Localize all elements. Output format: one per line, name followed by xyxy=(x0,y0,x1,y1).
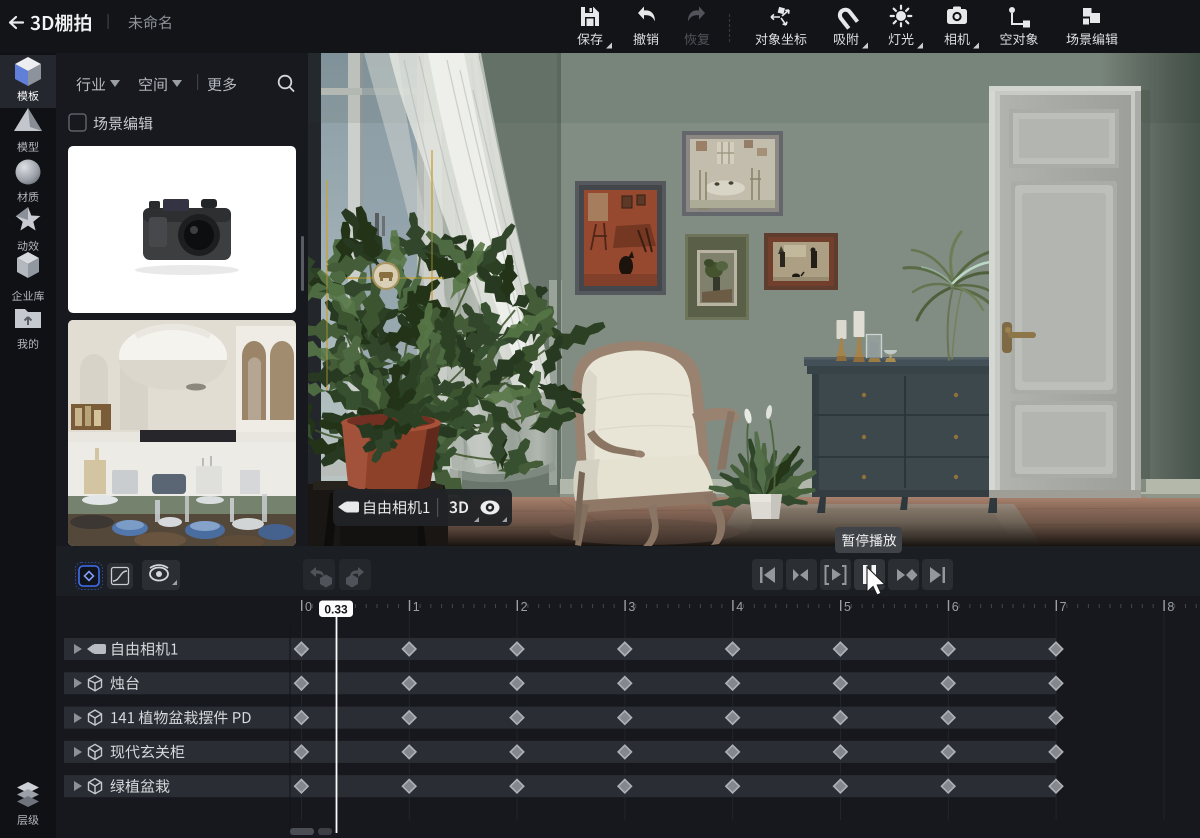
svg-text:0: 0 xyxy=(305,600,312,614)
svg-text:8: 8 xyxy=(1167,600,1174,614)
svg-text:3: 3 xyxy=(628,600,635,614)
svg-text:7: 7 xyxy=(1060,600,1067,614)
svg-text:2: 2 xyxy=(521,600,528,614)
svg-text:0.33: 0.33 xyxy=(324,603,348,617)
svg-text:6: 6 xyxy=(952,600,959,614)
svg-text:5: 5 xyxy=(844,600,851,614)
svg-text:4: 4 xyxy=(736,600,743,614)
svg-text:1: 1 xyxy=(413,600,420,614)
